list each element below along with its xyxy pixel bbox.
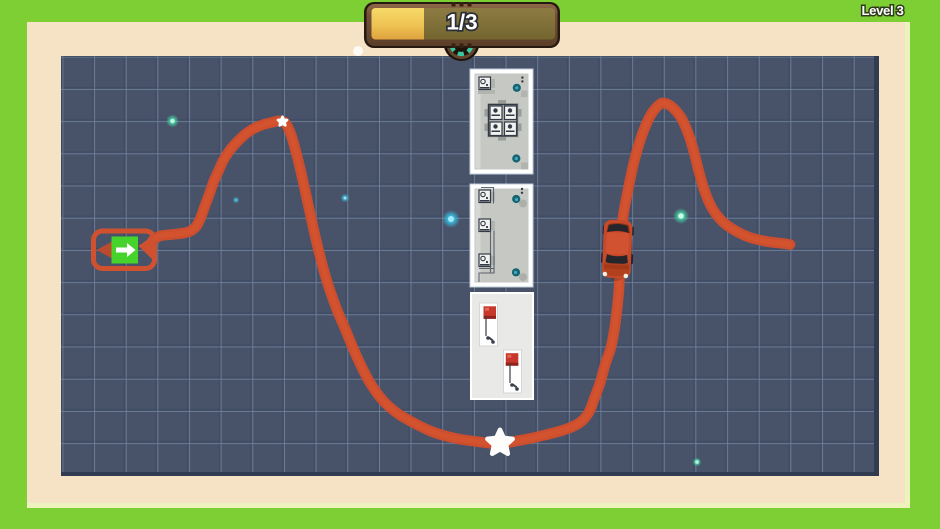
svg-text:1/3: 1/3 xyxy=(446,10,477,35)
svg-text:Level 3: Level 3 xyxy=(862,3,904,18)
